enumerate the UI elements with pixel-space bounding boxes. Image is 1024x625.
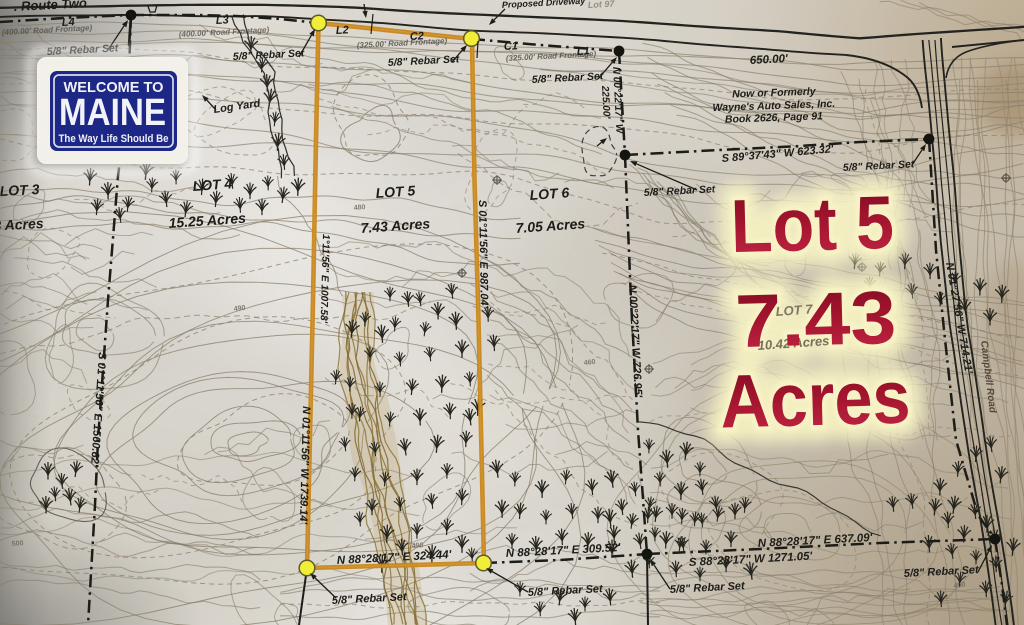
svg-text:LOT 5: LOT 5 (375, 182, 416, 201)
svg-text:Lot 97: Lot 97 (588, 0, 616, 10)
svg-text:1°11'56" E 1007.58': 1°11'56" E 1007.58' (318, 234, 331, 324)
svg-text:Lot 5: Lot 5 (730, 180, 895, 268)
svg-text:650.00': 650.00' (750, 53, 790, 67)
svg-text:L3: L3 (216, 14, 229, 27)
svg-text:480: 480 (354, 204, 366, 212)
svg-text:S 01°11'56" E 987.04': S 01°11'56" E 987.04' (476, 200, 490, 309)
svg-text:MAINE: MAINE (59, 92, 166, 134)
svg-text:LOT 6: LOT 6 (529, 184, 570, 203)
svg-text:500: 500 (12, 540, 24, 548)
svg-text:490: 490 (233, 305, 245, 313)
svg-text:Acres: Acres (719, 355, 911, 444)
svg-text:The Way Life Should Be: The Way Life Should Be (59, 133, 169, 145)
svg-text:LOT 4: LOT 4 (192, 175, 233, 194)
svg-text:LOT 3: LOT 3 (0, 181, 40, 199)
svg-text:460: 460 (583, 359, 595, 367)
svg-text:C1: C1 (504, 40, 519, 53)
svg-text:L2: L2 (336, 24, 349, 37)
svg-text:7.43: 7.43 (734, 275, 897, 363)
svg-text:490: 490 (412, 542, 424, 550)
svg-text:63 Acres: 63 Acres (0, 215, 44, 234)
svg-text:225.00': 225.00' (599, 85, 612, 120)
svg-text:L1: L1 (577, 45, 590, 58)
